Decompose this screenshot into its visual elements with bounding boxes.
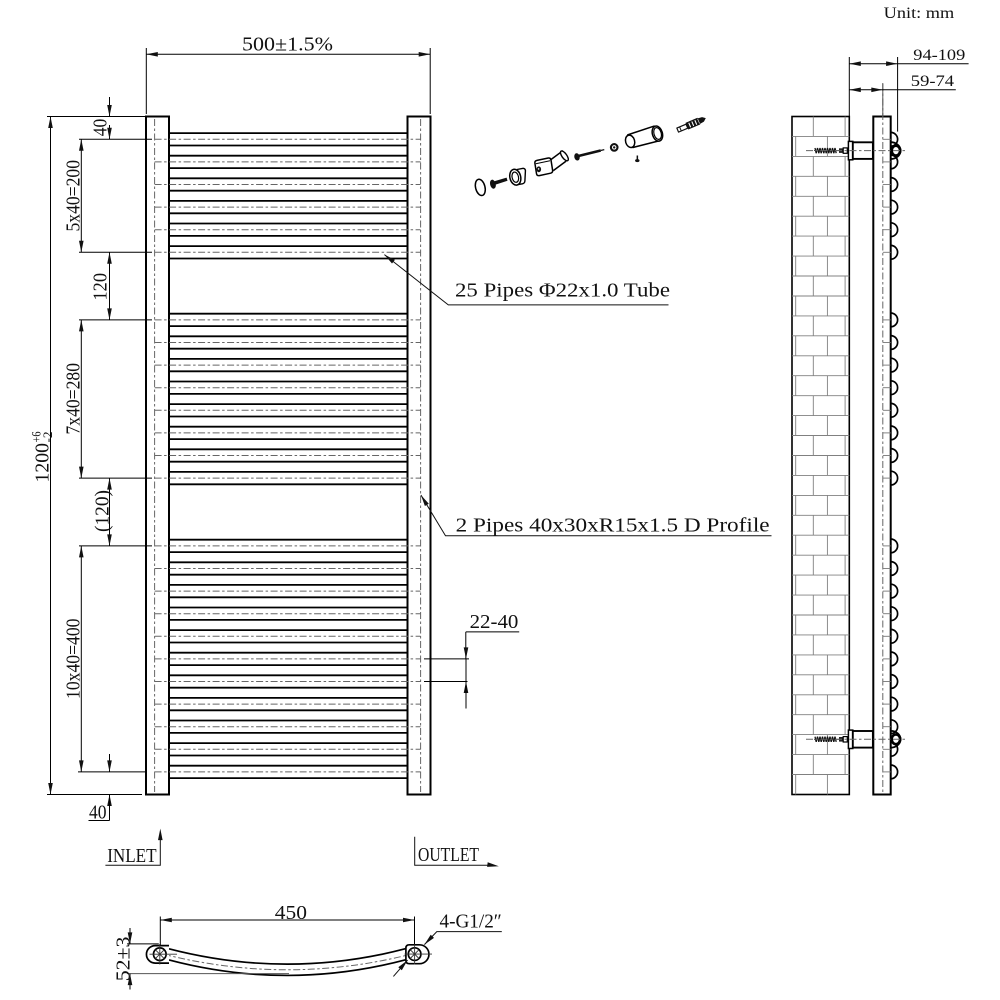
svg-text:500±1.5%: 500±1.5% — [242, 34, 333, 56]
svg-text:2 Pipes 40x30xR15x1.5 D Profil: 2 Pipes 40x30xR15x1.5 D Profile — [456, 515, 770, 537]
svg-text:7x40=280: 7x40=280 — [63, 363, 85, 435]
svg-text:40: 40 — [90, 119, 112, 137]
svg-text:25 Pipes Φ22x1.0 Tube: 25 Pipes Φ22x1.0 Tube — [455, 280, 670, 302]
svg-text:4-G1/2″: 4-G1/2″ — [440, 911, 502, 933]
svg-text:22-40: 22-40 — [470, 611, 519, 633]
svg-text:450: 450 — [275, 902, 307, 924]
svg-text:120: 120 — [90, 273, 112, 301]
svg-text:40: 40 — [89, 802, 107, 824]
svg-text:52±3: 52±3 — [113, 937, 135, 982]
svg-text:INLET: INLET — [107, 845, 156, 867]
svg-text:94-109: 94-109 — [913, 47, 965, 64]
svg-text:(120): (120) — [92, 490, 114, 532]
svg-text:1200: 1200 — [32, 443, 54, 483]
svg-text:59-74: 59-74 — [911, 73, 955, 90]
svg-text:OUTLET: OUTLET — [418, 844, 479, 866]
svg-text:10x40=400: 10x40=400 — [63, 619, 85, 700]
svg-text:-2: -2 — [41, 432, 55, 443]
svg-text:Unit: mm: Unit: mm — [884, 5, 955, 22]
svg-text:5x40=200: 5x40=200 — [63, 160, 85, 232]
